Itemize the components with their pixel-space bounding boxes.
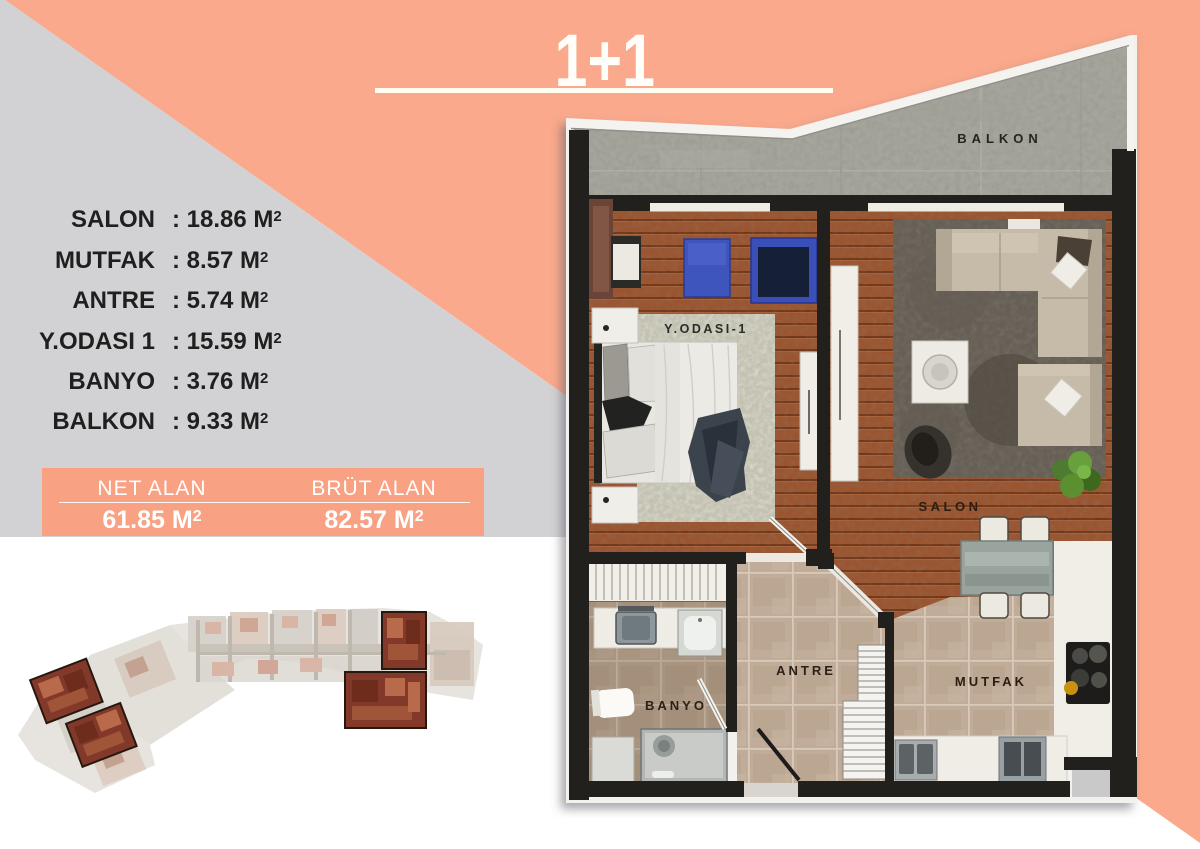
svg-text:ANTRE: ANTRE (776, 663, 836, 678)
svg-text:Y.ODASI-1: Y.ODASI-1 (664, 322, 748, 336)
svg-text:MUTFAK: MUTFAK (955, 674, 1027, 689)
svg-text:SALON: SALON (919, 499, 982, 514)
svg-text:BALKON: BALKON (957, 131, 1043, 146)
svg-text:BANYO: BANYO (645, 698, 707, 713)
